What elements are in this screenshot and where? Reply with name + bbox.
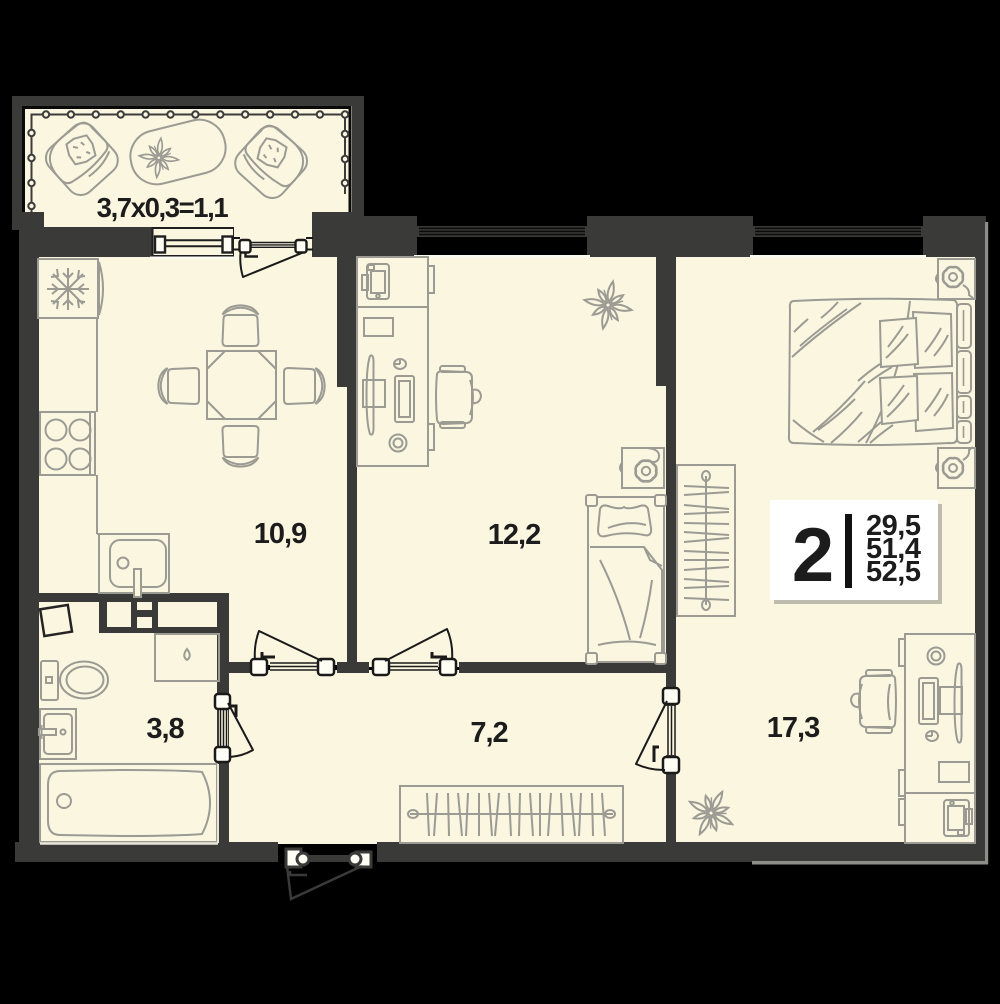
svg-text:17,3: 17,3 [767, 712, 820, 744]
svg-text:12,2: 12,2 [488, 519, 540, 551]
svg-text:3,8: 3,8 [146, 713, 184, 745]
svg-text:52,5: 52,5 [866, 556, 921, 588]
svg-text:2: 2 [792, 513, 832, 598]
svg-text:10,9: 10,9 [254, 518, 307, 550]
svg-text:3,7x0,3=1,1: 3,7x0,3=1,1 [97, 192, 229, 223]
svg-text:7,2: 7,2 [470, 717, 507, 749]
